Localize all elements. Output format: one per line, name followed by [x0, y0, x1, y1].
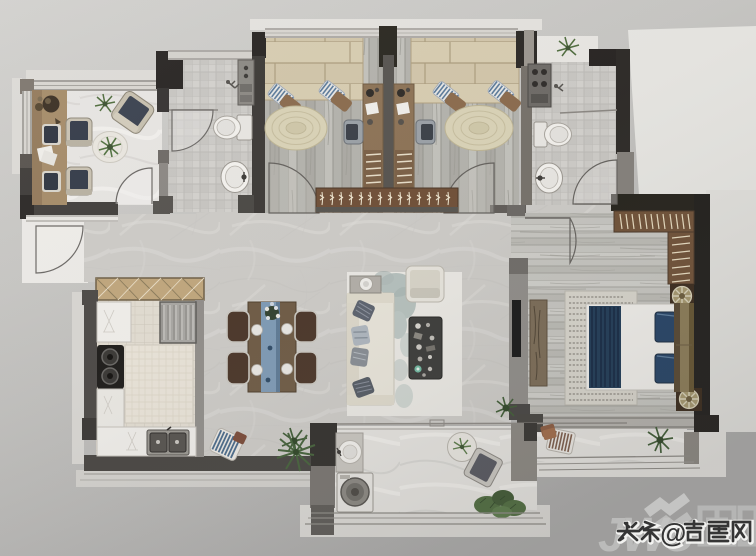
svg-text:@: @: [660, 518, 686, 548]
